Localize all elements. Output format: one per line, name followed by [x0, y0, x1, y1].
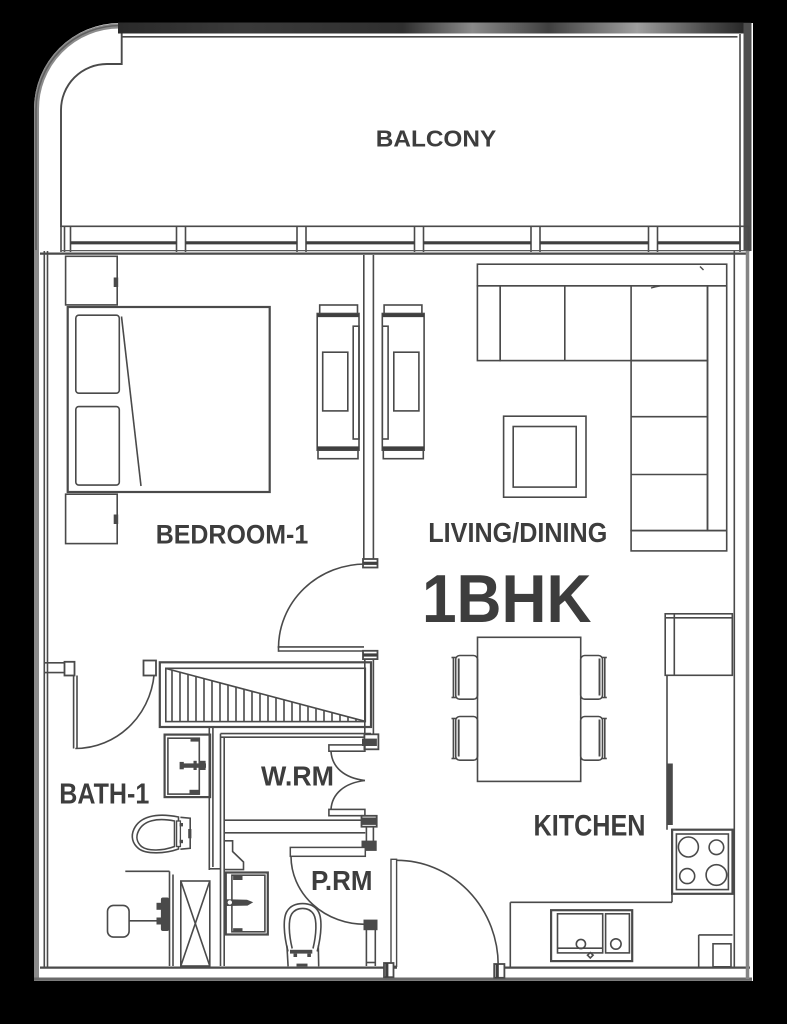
svg-text:P.RM: P.RM	[311, 865, 373, 896]
svg-text:LIVING/DINING: LIVING/DINING	[428, 517, 607, 548]
svg-text:KITCHEN: KITCHEN	[534, 810, 646, 843]
svg-text:BATH-1: BATH-1	[59, 779, 149, 811]
svg-text:BALCONY: BALCONY	[376, 126, 497, 152]
svg-text:W.RM: W.RM	[261, 761, 334, 792]
svg-text:1BHK: 1BHK	[422, 561, 592, 637]
svg-text:BEDROOM-1: BEDROOM-1	[156, 520, 309, 550]
